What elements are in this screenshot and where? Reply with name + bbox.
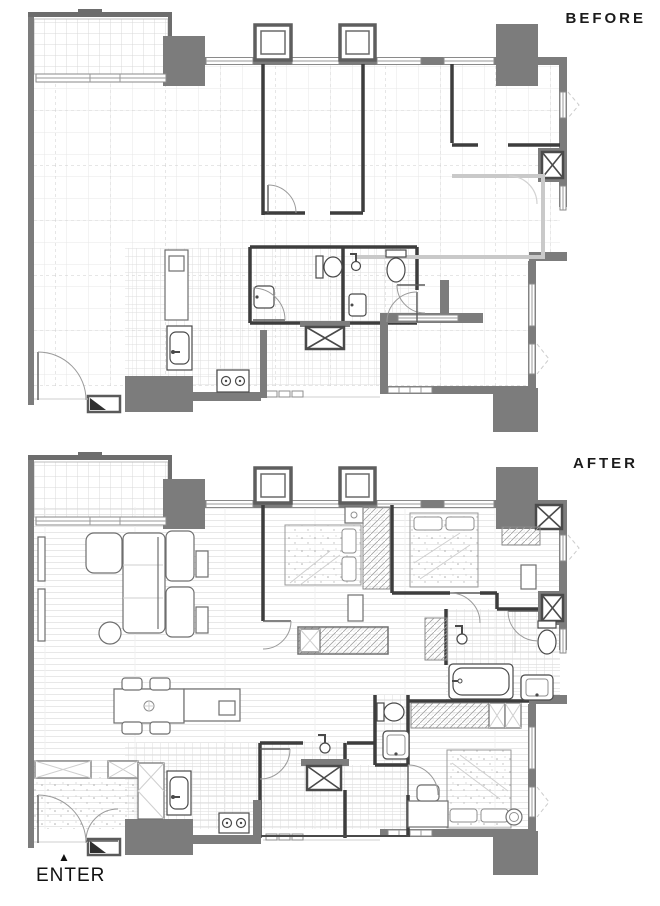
tv-cabinet-icon	[38, 589, 45, 641]
floor-plans-canvas	[0, 0, 660, 906]
sink-icon	[383, 731, 409, 759]
desk-icon	[408, 801, 448, 827]
sink-icon	[349, 294, 366, 316]
entry-marker: ▲ ENTER	[36, 851, 126, 887]
before-floor-plan	[28, 9, 579, 432]
after-plan-label: AFTER	[573, 455, 638, 472]
lamp-icon	[351, 512, 357, 518]
shaft-x-icon	[300, 321, 350, 349]
kitchen-island-icon	[184, 689, 240, 721]
before-plan-label: BEFORE	[565, 10, 646, 27]
balcony	[34, 462, 168, 517]
refrigerator-icon	[138, 763, 164, 819]
toilet-icon	[316, 256, 342, 278]
coffee-table-icon	[99, 622, 121, 644]
wardrobe-icon	[363, 507, 390, 589]
desk-icon	[348, 595, 363, 621]
toilet-icon	[538, 621, 556, 654]
tv-icon	[38, 537, 45, 581]
lounge-chair-icon	[86, 533, 122, 573]
armchair-icon	[166, 531, 194, 581]
entry-label: ENTER	[36, 865, 126, 887]
entry-arrow-icon: ▲	[58, 851, 126, 863]
side-table-icon	[196, 607, 208, 633]
toilet-icon	[386, 250, 406, 282]
sink-icon	[254, 286, 274, 308]
bedroom-2	[285, 507, 390, 654]
floor-plan-sheet: BEFORE AFTER ▲ ENTER	[0, 0, 660, 906]
bathtub-icon	[449, 664, 513, 699]
sink-icon	[167, 771, 191, 815]
before-floor-finish	[34, 64, 560, 400]
chair-icon	[150, 678, 170, 690]
toilet-icon	[377, 703, 404, 721]
balcony	[34, 19, 168, 74]
chair-icon	[122, 722, 142, 734]
entry-closet	[35, 761, 138, 778]
wardrobe-icon	[425, 618, 447, 660]
desk-icon	[521, 565, 536, 589]
chair-icon	[122, 678, 142, 690]
refrigerator-icon	[165, 250, 188, 320]
armchair-icon	[166, 587, 194, 637]
shaft-x-icon	[301, 759, 349, 790]
stove-icon	[219, 813, 249, 833]
tv-cabinet-icon	[298, 627, 388, 654]
stove-icon	[217, 370, 249, 392]
after-floor-plan	[28, 452, 579, 875]
sink-icon	[167, 326, 192, 370]
window-icon	[398, 315, 458, 321]
shaft-x-icon	[536, 505, 562, 529]
wardrobe-icon	[502, 527, 540, 545]
wardrobe-icon	[411, 703, 489, 728]
chair-icon	[150, 722, 170, 734]
chair-icon	[417, 785, 439, 801]
side-table-icon	[196, 551, 208, 577]
sofa-icon	[123, 533, 165, 633]
sink-icon	[521, 675, 553, 700]
